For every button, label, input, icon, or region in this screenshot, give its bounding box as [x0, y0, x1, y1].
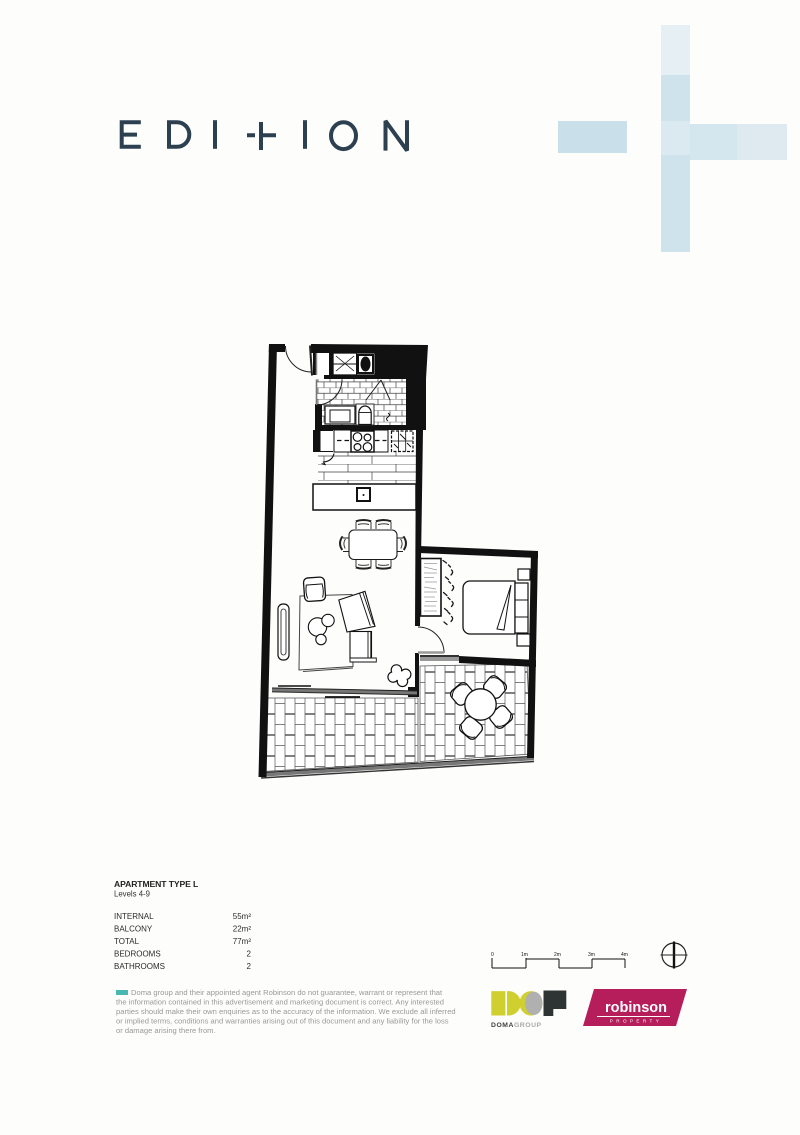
svg-text:1m: 1m [521, 952, 528, 958]
svg-text:parties should make their own: parties should make their own enquiries … [116, 1007, 456, 1016]
svg-text:PROPERTY: PROPERTY [610, 1019, 662, 1024]
svg-text:77m²: 77m² [233, 937, 252, 946]
svg-text:APARTMENT TYPE L: APARTMENT TYPE L [114, 879, 198, 889]
svg-text:or implied terms, conditions a: or implied terms, conditions and warrant… [116, 1017, 449, 1026]
svg-text:the information contained in t: the information contained in this advert… [116, 998, 444, 1007]
svg-text:BEDROOMS: BEDROOMS [114, 950, 161, 959]
svg-text:DOMAGROUP: DOMAGROUP [491, 1022, 542, 1029]
svg-text:3m: 3m [588, 952, 595, 958]
svg-text:INTERNAL: INTERNAL [114, 912, 154, 921]
svg-text:2m: 2m [554, 952, 561, 958]
svg-text:22m²: 22m² [233, 925, 252, 934]
svg-text:4m: 4m [621, 952, 628, 958]
svg-text:BATHROOMS: BATHROOMS [114, 962, 165, 971]
svg-text:Levels 4-9: Levels 4-9 [114, 890, 150, 899]
svg-text:TOTAL: TOTAL [114, 937, 140, 946]
svg-text:robinson: robinson [605, 1000, 667, 1016]
svg-text:Doma group and their appointed: Doma group and their appointed agent Rob… [131, 988, 443, 997]
svg-text:2: 2 [247, 950, 252, 959]
svg-text:55m²: 55m² [233, 912, 252, 921]
svg-text:BALCONY: BALCONY [114, 925, 153, 934]
svg-text:or damage arising there from.: or damage arising there from. [116, 1026, 216, 1035]
svg-text:2: 2 [247, 962, 252, 971]
svg-text:0: 0 [491, 952, 494, 958]
